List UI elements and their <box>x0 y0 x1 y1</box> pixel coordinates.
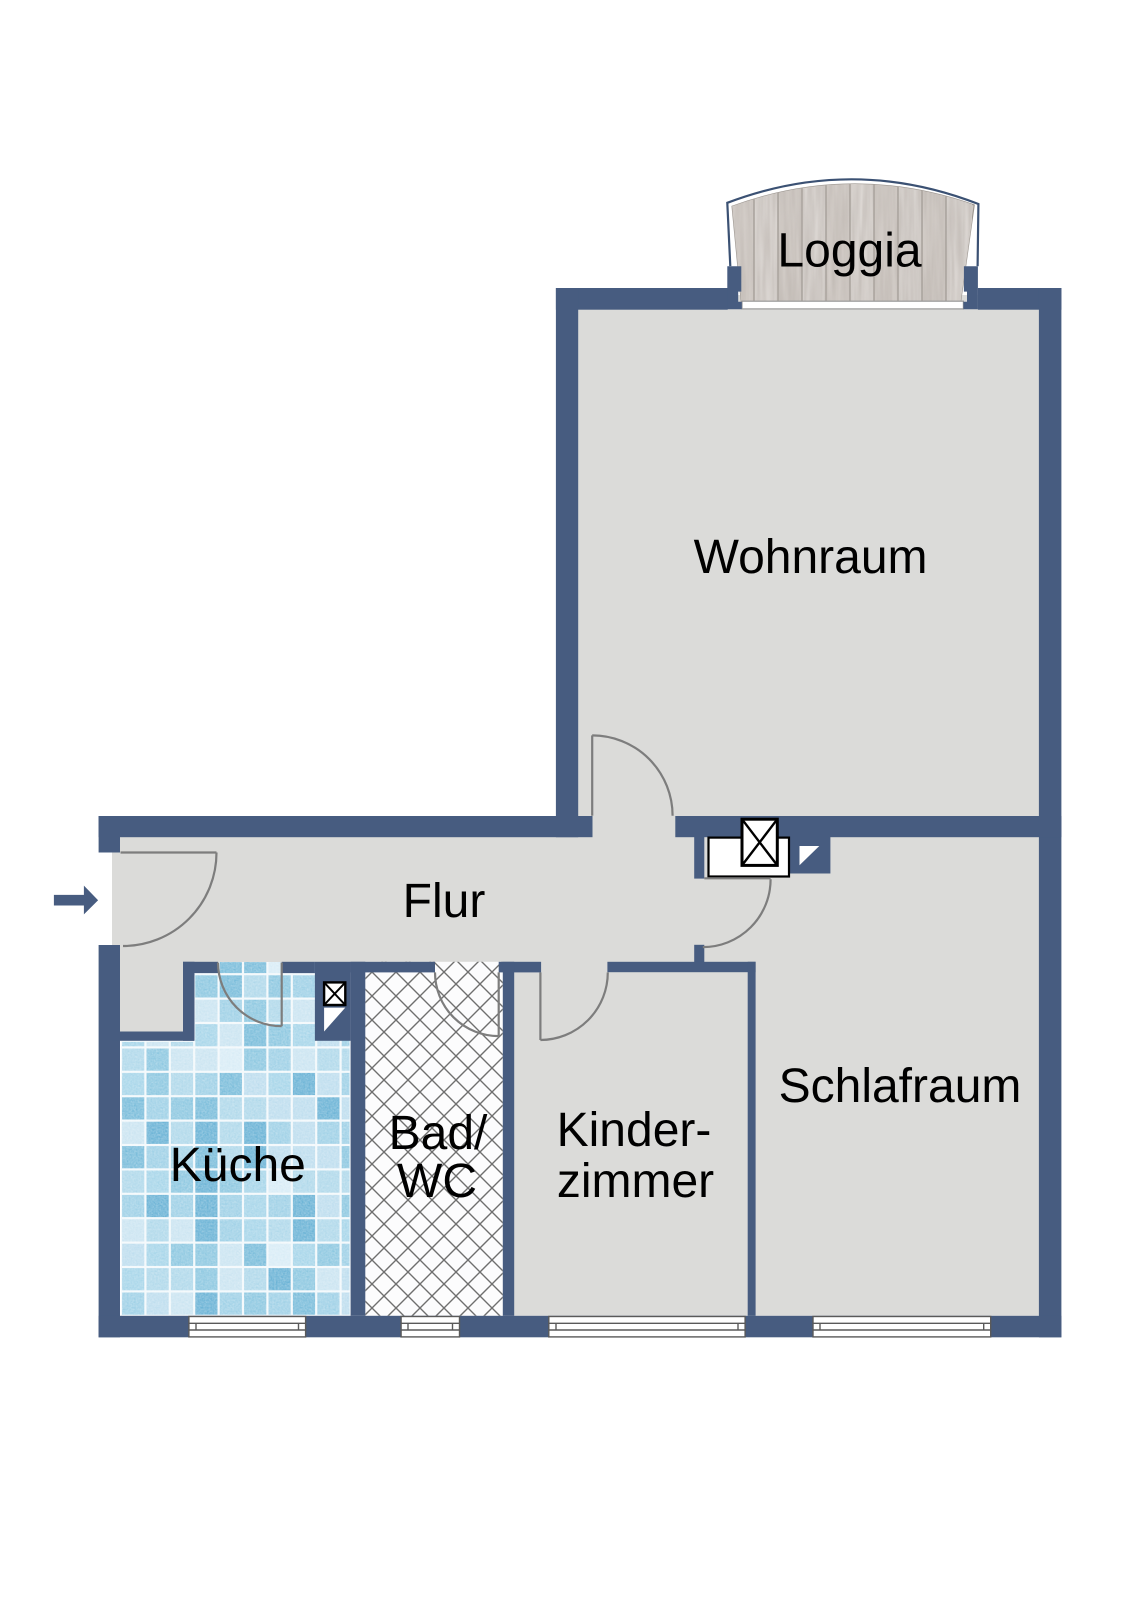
svg-text:Schlafraum: Schlafraum <box>779 1060 1022 1113</box>
svg-text:Wohnraum: Wohnraum <box>694 531 928 584</box>
svg-text:Bad/: Bad/ <box>389 1107 488 1160</box>
svg-text:Küche: Küche <box>170 1139 306 1192</box>
svg-text:Flur: Flur <box>403 875 486 928</box>
svg-text:Kinder-: Kinder- <box>557 1104 712 1157</box>
svg-text:Loggia: Loggia <box>777 225 921 278</box>
svg-text:WC: WC <box>397 1155 477 1208</box>
svg-text:zimmer: zimmer <box>557 1155 714 1208</box>
